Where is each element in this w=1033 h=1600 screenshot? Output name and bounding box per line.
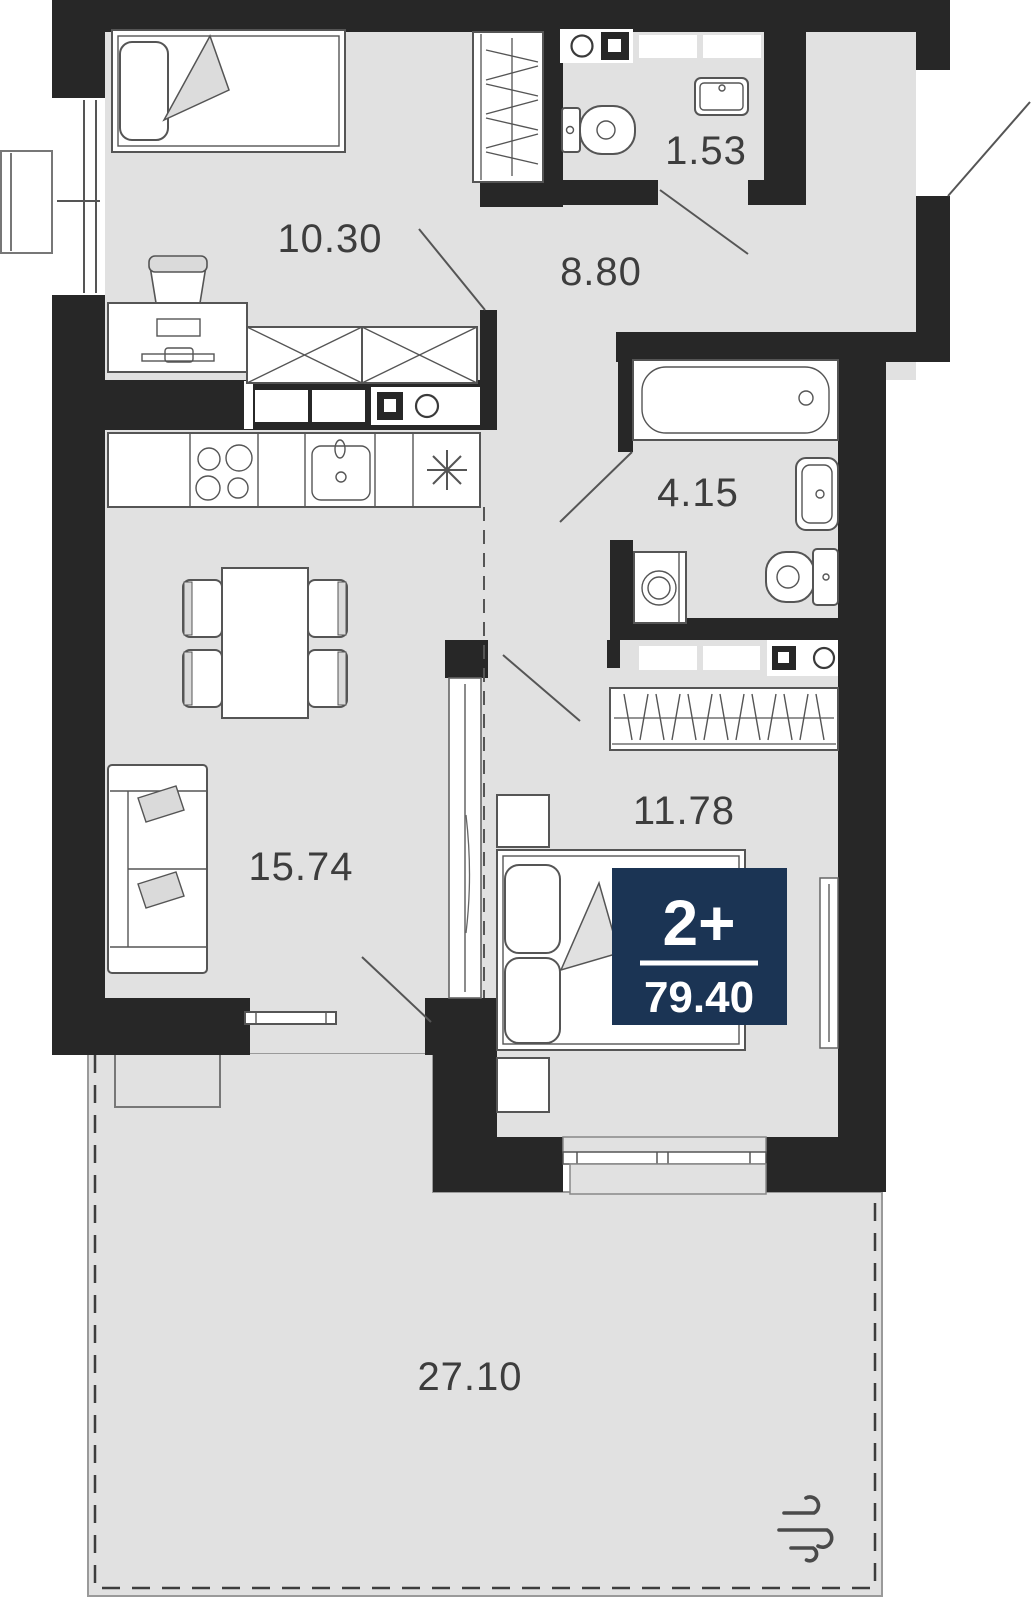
coat-closet	[473, 32, 543, 182]
area-badge: 2+ 79.40	[612, 868, 787, 1025]
badge-total-area: 79.40	[644, 973, 754, 1022]
toilet	[562, 106, 635, 154]
kitchen-shelf	[255, 390, 308, 422]
sliding-partition	[449, 678, 481, 998]
badge-rooms-count: 2+	[663, 887, 736, 959]
terrace-step	[570, 1164, 766, 1194]
hall-shelf	[703, 35, 761, 58]
area-label-wc: 1.53	[665, 129, 747, 173]
window-bedroom-secondary	[1, 98, 105, 295]
electrical-panel-icon	[371, 387, 480, 425]
bed-pillow	[505, 958, 560, 1043]
terrace-door-threshold	[245, 1012, 336, 1024]
fridge-icon	[427, 450, 467, 490]
floorplan-card[interactable]: 10.30 8.80 1.53 4.15 15.74 11.78 27.10 2…	[0, 0, 1033, 1600]
bedroom-shelf	[639, 646, 697, 670]
area-label-bedroom-primary: 11.78	[633, 789, 735, 833]
entrance-door-swing	[948, 102, 1030, 196]
single-bed	[112, 30, 345, 152]
nightstand	[497, 1058, 549, 1112]
wardrobe-rail	[610, 688, 838, 750]
kitchen-counter	[108, 433, 480, 507]
area-label-bedroom-secondary: 10.30	[277, 217, 382, 261]
nightstand	[497, 795, 549, 847]
dining-chair	[308, 650, 347, 707]
sofa	[108, 765, 207, 973]
dining-chair	[308, 580, 347, 637]
bedroom-shelf	[703, 646, 760, 670]
washing-machine	[634, 552, 686, 623]
area-label-bathroom: 4.15	[657, 471, 739, 515]
floorplan-canvas: 10.30 8.80 1.53 4.15 15.74 11.78 27.10 2…	[0, 0, 1033, 1600]
area-label-hallway: 8.80	[560, 250, 642, 294]
hall-shelf	[639, 35, 697, 58]
area-label-terrace: 27.10	[417, 1355, 522, 1399]
dining-chair	[183, 650, 222, 707]
bathroom-sink	[796, 458, 838, 530]
bathtub	[633, 360, 838, 440]
dining-chair	[183, 580, 222, 637]
area-label-living-kitchen: 15.74	[248, 845, 353, 889]
bed-pillow	[505, 865, 560, 953]
bathroom-toilet	[766, 549, 838, 605]
hand-sink	[695, 78, 748, 115]
desk	[108, 303, 247, 372]
desk-chair	[149, 256, 207, 303]
electrical-panel-icon	[560, 29, 633, 63]
kitchen-shelf	[312, 390, 365, 422]
window-bedroom-primary-side	[820, 878, 838, 1048]
electrical-panel-icon	[767, 640, 838, 676]
window-bedroom-primary-terrace	[563, 1137, 766, 1194]
room-hallway	[473, 32, 543, 182]
wardrobe	[247, 327, 477, 383]
terrace-bench	[115, 1053, 220, 1107]
